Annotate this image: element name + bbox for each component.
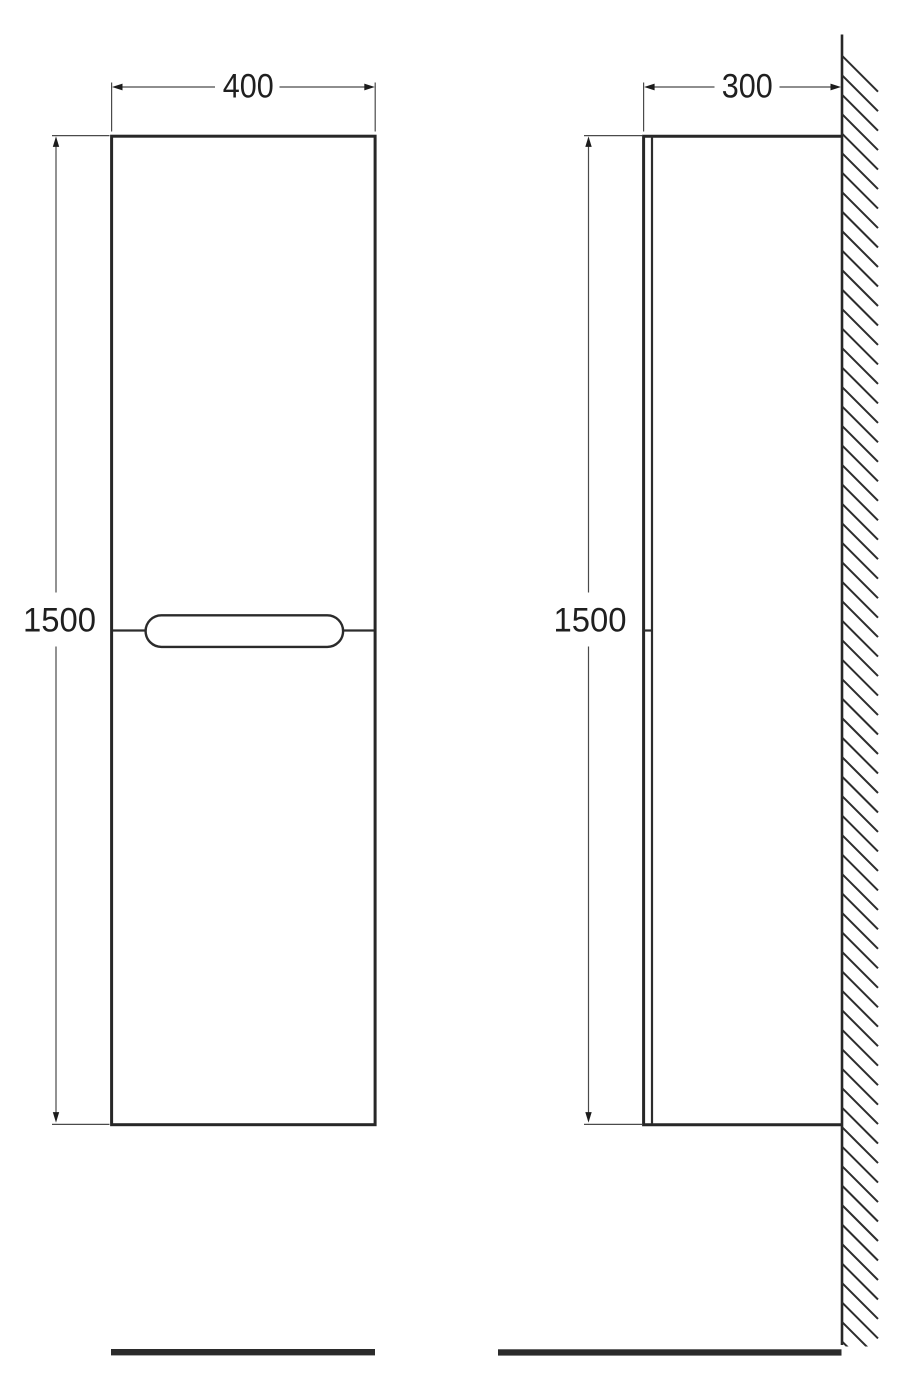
svg-text:1500: 1500 (554, 602, 627, 640)
svg-text:400: 400 (223, 68, 274, 106)
svg-text:300: 300 (722, 68, 773, 106)
svg-text:1500: 1500 (23, 602, 96, 640)
